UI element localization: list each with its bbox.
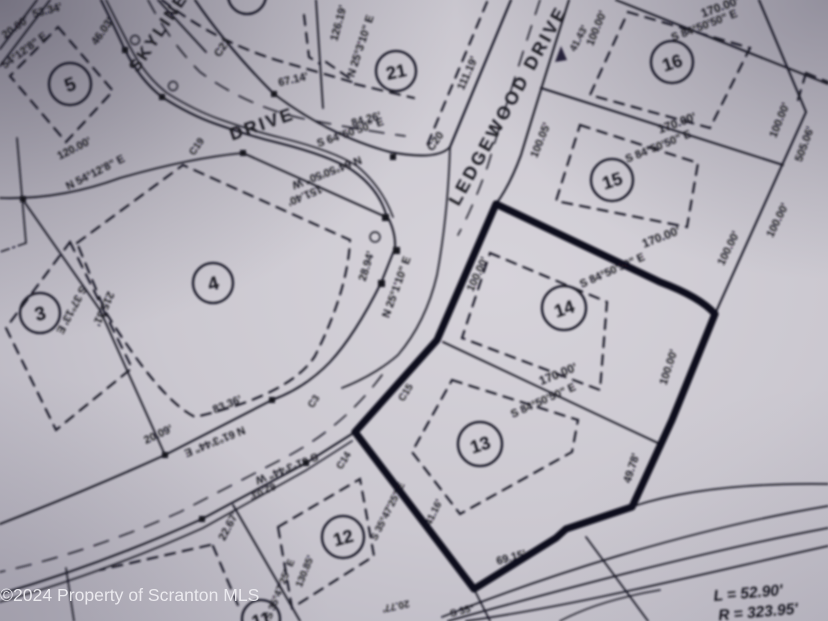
svg-text:21: 21: [384, 60, 408, 84]
svg-text:©2024 Property of Scranton MLS: ©2024 Property of Scranton MLS: [0, 585, 259, 605]
